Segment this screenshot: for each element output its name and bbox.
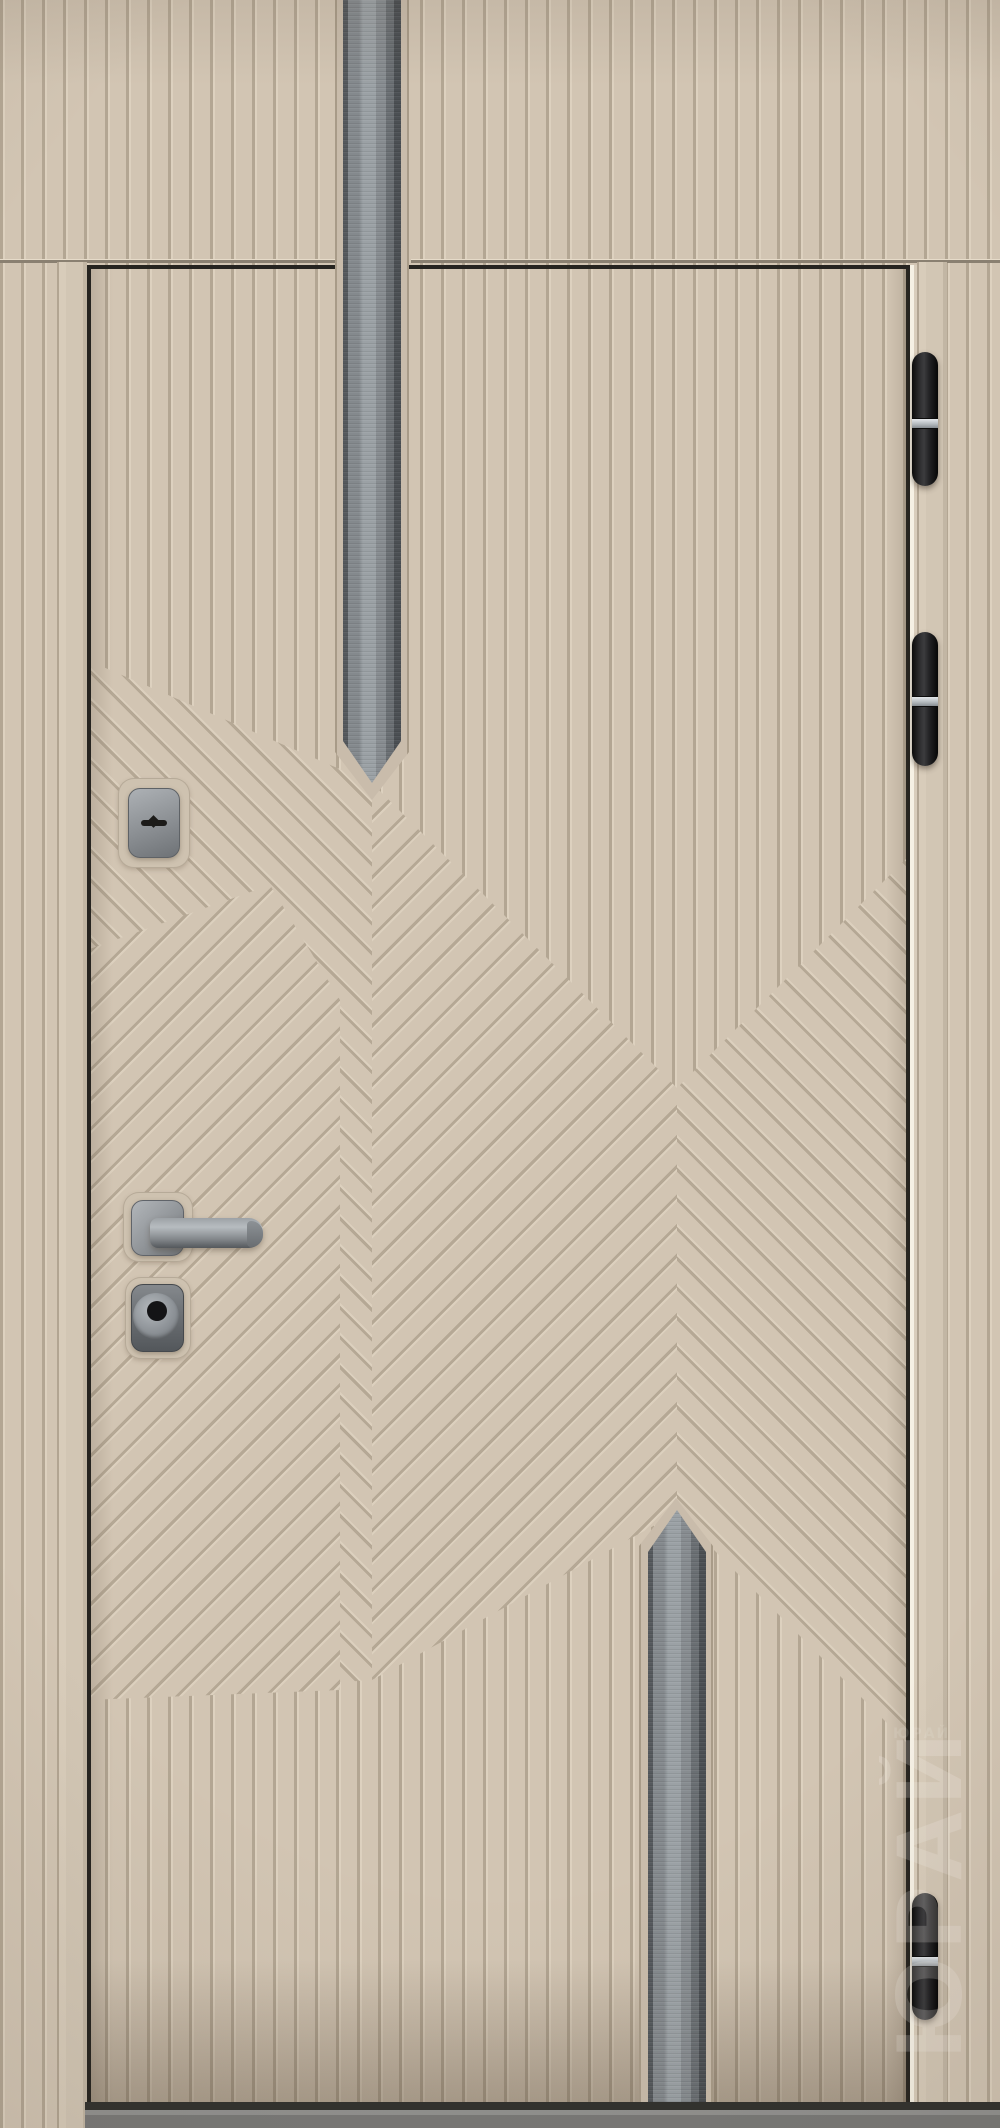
leaf-shadow-bottom	[91, 1960, 906, 2104]
cylinder-keyhole	[147, 1301, 167, 1321]
watermark-text-vertical: ЮРАЙ	[870, 1743, 990, 2043]
left-jamb-strip	[57, 262, 87, 2128]
door-leaf-outline	[87, 265, 910, 2108]
hinge-band	[912, 418, 938, 429]
threshold	[85, 2102, 1000, 2128]
leaf-shadow-left	[91, 269, 113, 2104]
metal-inlay-strip-top	[343, 0, 401, 783]
door-product-photo: ЮРАЙ ЮРАЙ	[0, 0, 1000, 2128]
transom-seam-right	[411, 259, 1000, 263]
hinge-middle	[912, 632, 938, 766]
keyhole-slot	[141, 820, 167, 826]
metal-inlay-strip-bottom	[648, 1510, 706, 2106]
transom-seam-left	[0, 259, 337, 263]
hinge-band	[912, 696, 938, 707]
hinge-top	[912, 352, 938, 486]
